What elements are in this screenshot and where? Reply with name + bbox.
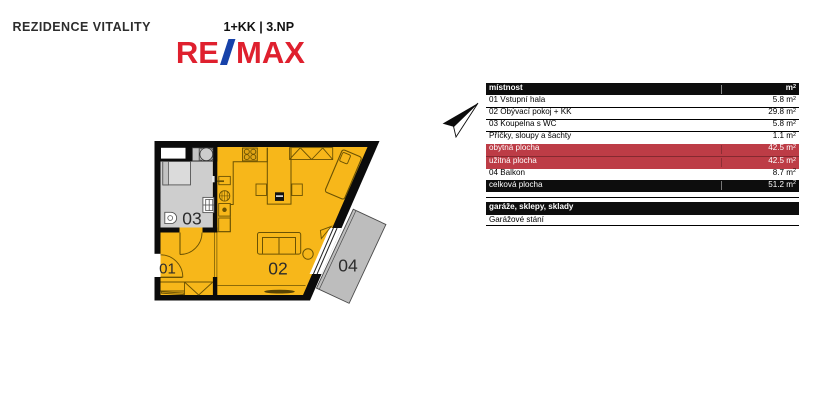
svg-text:04: 04 [338, 256, 358, 276]
svg-text:01: 01 [159, 260, 176, 277]
svg-text:03: 03 [182, 208, 201, 228]
svg-text:02: 02 [268, 259, 287, 279]
